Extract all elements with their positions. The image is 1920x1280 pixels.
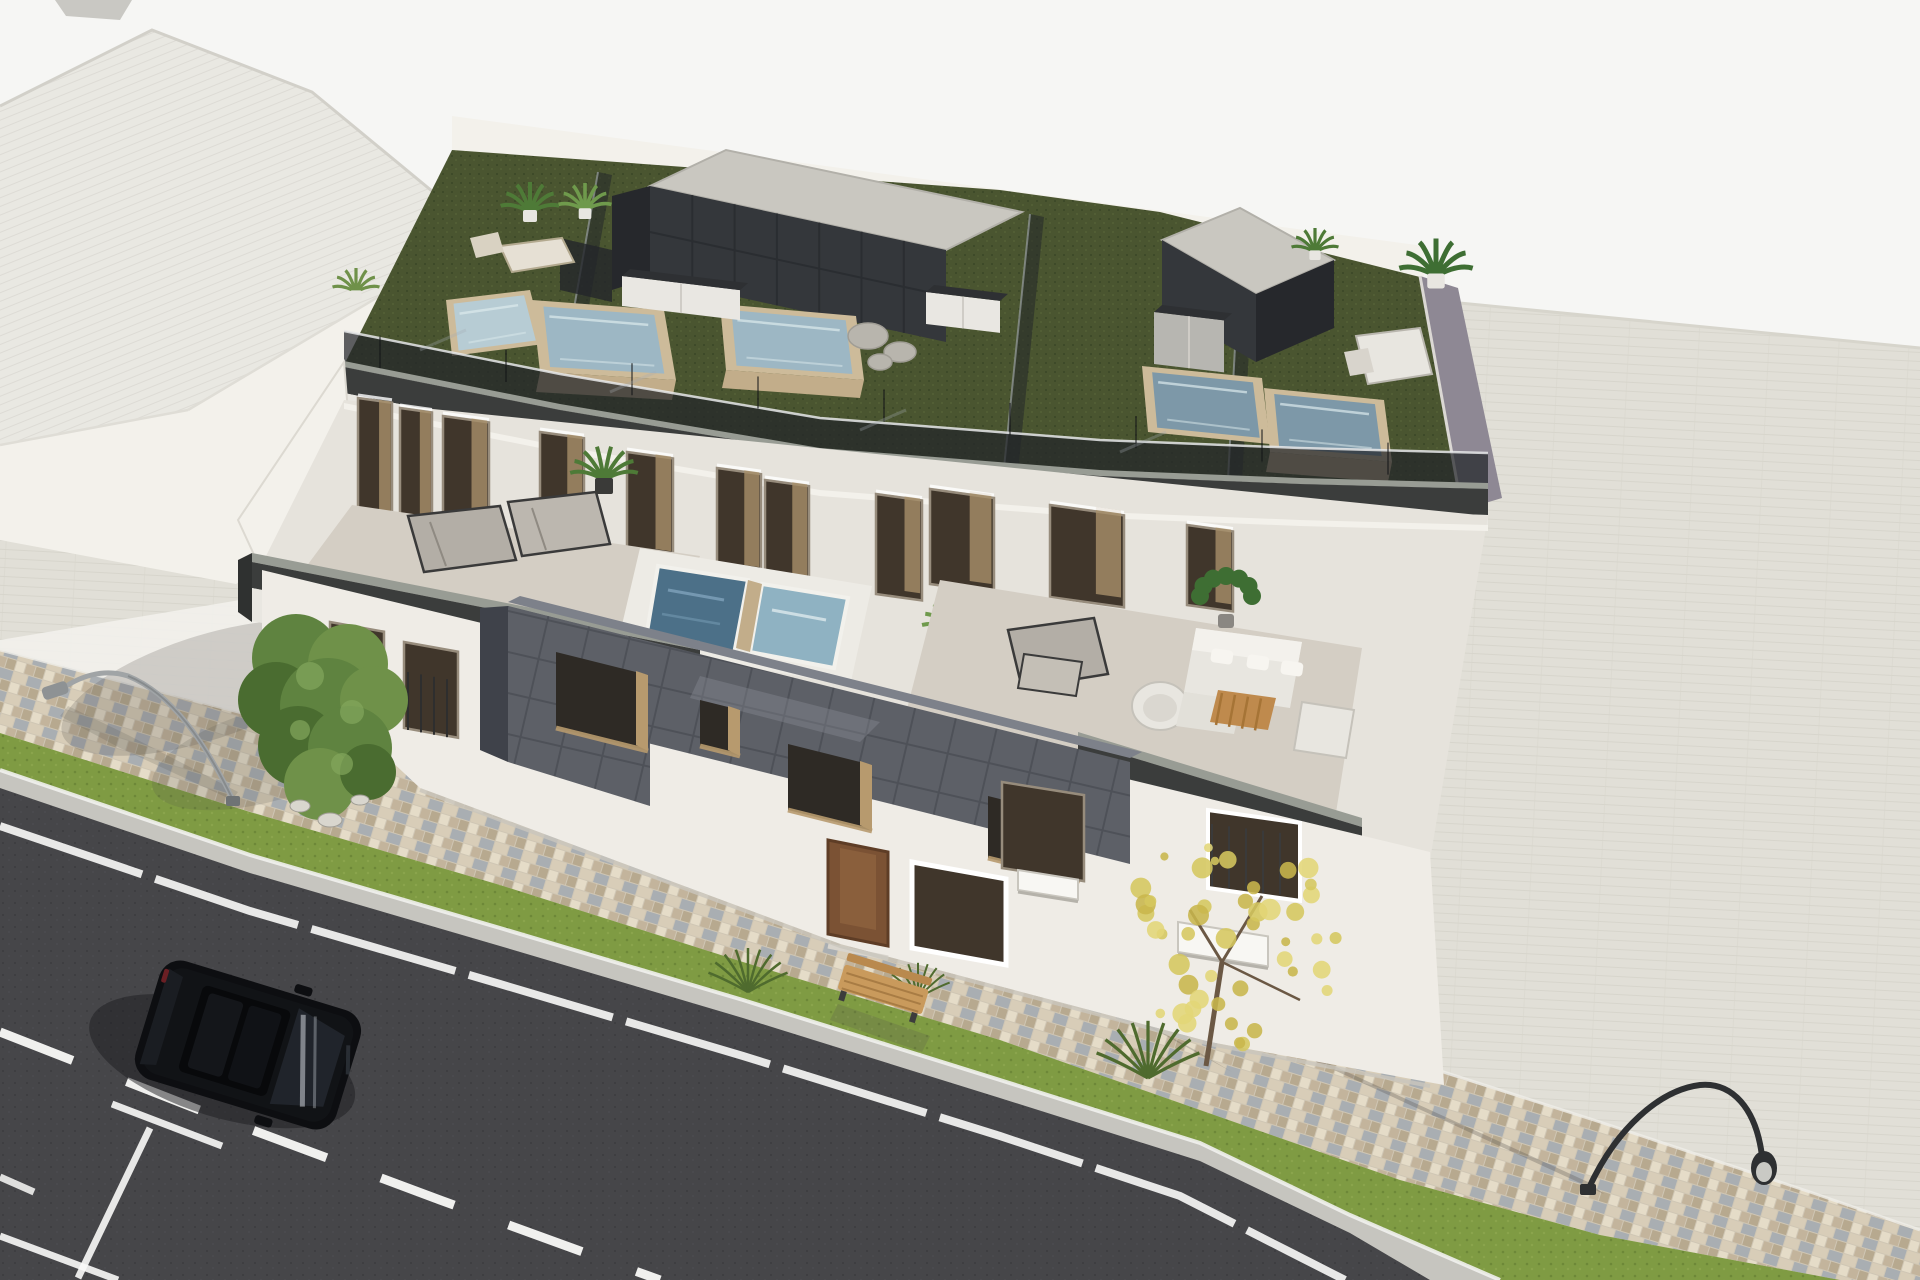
tree-base-stones bbox=[351, 795, 369, 805]
window-curtain bbox=[1096, 507, 1121, 598]
lamp-base bbox=[226, 796, 240, 806]
window-curtain bbox=[472, 418, 488, 511]
yellow-canopy-tuft bbox=[1247, 1023, 1262, 1038]
yellow-canopy-tuft bbox=[1147, 921, 1165, 939]
ground-window-mid bbox=[912, 862, 1006, 965]
yellow-canopy-tuft bbox=[1305, 879, 1317, 891]
yellow-canopy-tuft bbox=[1313, 961, 1331, 979]
yellow-canopy-tuft bbox=[1277, 951, 1293, 967]
window-curtain bbox=[905, 496, 921, 593]
canopy-highlight bbox=[340, 700, 364, 724]
yellow-canopy-tuft bbox=[1156, 1009, 1166, 1019]
yellow-canopy-tuft bbox=[1204, 843, 1213, 852]
left-parapet-return bbox=[238, 553, 252, 622]
terrace-lounger-2 bbox=[508, 492, 610, 556]
canopy-highlight bbox=[296, 662, 324, 690]
yellow-canopy-tuft bbox=[1216, 928, 1237, 949]
yellow-canopy-tuft bbox=[1169, 954, 1190, 975]
yellow-canopy-tuft bbox=[1160, 852, 1168, 860]
lamp-lens bbox=[1756, 1162, 1772, 1182]
window-curtain bbox=[970, 491, 992, 584]
yellow-canopy-tuft bbox=[1288, 966, 1298, 976]
canopy-highlight bbox=[290, 720, 310, 740]
tree-base-stones bbox=[290, 800, 310, 812]
window-curtain bbox=[656, 454, 672, 551]
yellow-canopy-tuft bbox=[1181, 927, 1195, 941]
yellow-canopy-tuft bbox=[1219, 851, 1237, 869]
tile-band-side bbox=[480, 606, 508, 762]
yellow-canopy-tuft bbox=[1211, 857, 1219, 865]
yellow-canopy-tuft bbox=[1322, 985, 1333, 996]
opening-reveal bbox=[728, 706, 740, 756]
decor-stone bbox=[848, 323, 888, 349]
yellow-canopy-tuft bbox=[1188, 905, 1209, 926]
yellow-canopy-tuft bbox=[1286, 903, 1304, 921]
canopy-highlight bbox=[331, 753, 353, 775]
white-armchair-2 bbox=[1294, 702, 1354, 758]
door-panel bbox=[840, 848, 876, 930]
yellow-canopy-tuft bbox=[1190, 990, 1209, 1009]
yellow-canopy-tuft bbox=[1311, 933, 1322, 944]
lamp-base-right bbox=[1580, 1184, 1596, 1195]
terrace-lounger-1 bbox=[408, 506, 516, 572]
ground-window-left-2 bbox=[404, 642, 458, 738]
ground-window-right-1 bbox=[1002, 782, 1084, 881]
armchair-cushion bbox=[1143, 694, 1177, 722]
yellow-canopy-tuft bbox=[1280, 862, 1297, 879]
window-curtain bbox=[379, 400, 391, 527]
yellow-canopy-tuft bbox=[1281, 937, 1290, 946]
rooftop-pool-4-water bbox=[1152, 372, 1260, 438]
window-curtain bbox=[792, 482, 807, 581]
yellow-canopy-tuft bbox=[1247, 881, 1260, 894]
far-roof-structure bbox=[55, 0, 132, 20]
yellow-canopy-tuft bbox=[1211, 997, 1225, 1011]
window-curtain bbox=[1216, 527, 1232, 604]
yellow-canopy-tuft bbox=[1205, 970, 1217, 982]
yellow-canopy-tuft bbox=[1259, 899, 1281, 921]
tree-base-stones bbox=[318, 813, 342, 827]
window-curtain bbox=[744, 470, 759, 567]
opening-reveal bbox=[860, 761, 872, 831]
opening-reveal bbox=[636, 671, 648, 751]
yellow-canopy-tuft bbox=[1145, 895, 1157, 907]
scene-svg bbox=[0, 0, 1920, 1280]
decor-stone bbox=[868, 354, 892, 370]
render-canvas bbox=[0, 0, 1920, 1280]
lounge-ottoman bbox=[1018, 654, 1082, 696]
jacuzzi-2-water bbox=[750, 584, 848, 668]
yellow-canopy-tuft bbox=[1234, 1037, 1245, 1048]
yellow-canopy-tuft bbox=[1192, 857, 1213, 878]
yellow-canopy-tuft bbox=[1232, 980, 1248, 996]
yellow-canopy-tuft bbox=[1298, 858, 1318, 878]
yellow-canopy-tuft bbox=[1330, 932, 1342, 944]
yellow-canopy-tuft bbox=[1225, 1017, 1238, 1030]
